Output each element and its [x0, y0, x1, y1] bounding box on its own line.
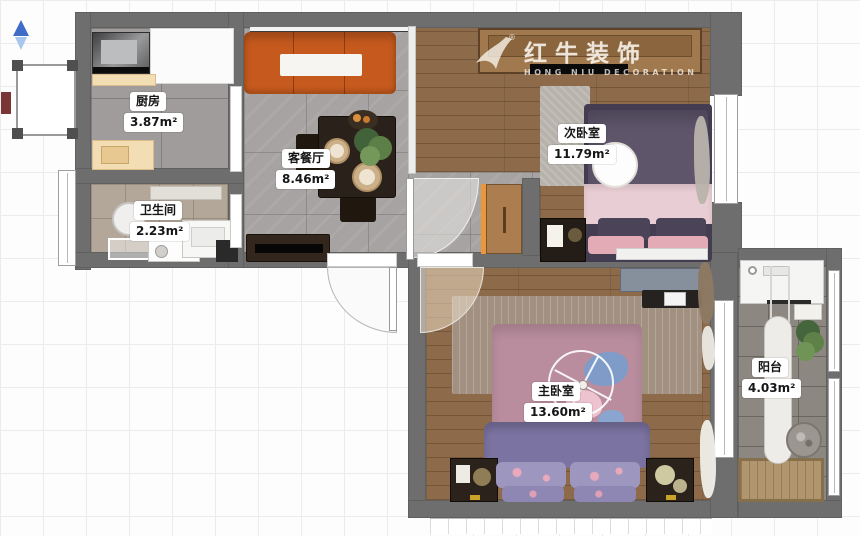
- room-label-kitchen[interactable]: 厨房 3.87m²: [130, 90, 183, 132]
- room-name: 卫生间: [134, 201, 182, 220]
- cabinet-handle: [503, 207, 506, 233]
- bed1-pillow-small: [502, 486, 564, 502]
- nightstand-dish: [473, 468, 491, 486]
- brand-name: 红牛装饰: [524, 34, 697, 68]
- bay-post-bottom-right: [67, 128, 78, 139]
- room-area: 2.23m²: [130, 222, 189, 241]
- room-area: 8.46m²: [276, 170, 335, 189]
- fruit: [363, 116, 370, 123]
- kitchen-lower-counter[interactable]: [92, 140, 154, 170]
- bed1-pillows: [492, 460, 642, 504]
- room-label-bathroom[interactable]: 卫生间 2.23m²: [134, 199, 189, 241]
- nightstand-paper: [456, 465, 470, 483]
- room-label-living[interactable]: 客餐厅 8.46m²: [282, 147, 335, 189]
- room-label-bedroom1[interactable]: 主卧室 13.60m²: [532, 380, 592, 422]
- room-name: 客餐厅: [282, 149, 330, 168]
- room-area: 13.60m²: [524, 403, 592, 422]
- cooktop-strip: [93, 67, 149, 73]
- entry-door-opening: [327, 253, 397, 267]
- kitchen-door-opening: [230, 86, 242, 172]
- bed2-bench: [616, 248, 708, 260]
- hall-door-leaf[interactable]: [406, 178, 414, 260]
- north-arrow-head: [13, 20, 29, 36]
- bedroom1-door-opening: [417, 253, 473, 267]
- plate-inner: [359, 169, 375, 185]
- gold-knob: [666, 495, 676, 500]
- wall-balcony-bottom: [738, 500, 842, 518]
- room-name: 阳台: [752, 358, 788, 377]
- sofa-throw-blanket: [280, 54, 362, 76]
- tv-cabinet-groove: [255, 244, 323, 253]
- bathroom-door-opening: [230, 194, 242, 248]
- bay-post-top-left: [12, 60, 23, 71]
- bedroom1-desk[interactable]: [620, 268, 700, 292]
- floorplan-canvas: ® 红牛装饰 HONG NIU DECORATION: [0, 0, 860, 536]
- kitchen-counter-cabinet[interactable]: [150, 28, 234, 84]
- balcony-side-table[interactable]: [794, 304, 822, 320]
- bay-post-top-right: [67, 60, 78, 71]
- tv-cabinet[interactable]: [246, 234, 330, 262]
- entry-door-leaf[interactable]: [389, 267, 397, 331]
- bedroom2-window[interactable]: [714, 94, 738, 204]
- washing-machine[interactable]: [740, 260, 824, 304]
- registered-mark: ®: [508, 33, 516, 42]
- living-bedroom2-partition: [408, 26, 416, 174]
- room-name: 主卧室: [532, 382, 580, 401]
- nightstand-plate: [655, 465, 675, 485]
- bed1-pillow: [570, 462, 640, 488]
- bathroom-window[interactable]: [58, 170, 76, 266]
- wall-wardrobe-nook: [522, 178, 540, 256]
- exterior-pipe-marker: [1, 92, 11, 114]
- kitchen-sink: [101, 146, 129, 164]
- brand-subtitle: HONG NIU DECORATION: [524, 68, 697, 77]
- fruit: [353, 114, 361, 122]
- washer-tray: [763, 266, 789, 276]
- north-arrow-tail: [15, 37, 27, 50]
- bedroom2-nightstand[interactable]: [540, 218, 586, 262]
- gold-knob: [470, 495, 480, 500]
- mop-wheel: [155, 245, 168, 258]
- nightstand-plate: [673, 479, 687, 493]
- balcony-window-upper[interactable]: [828, 270, 840, 372]
- room-area: 11.79m²: [548, 145, 616, 164]
- balcony-wood-mat[interactable]: [738, 458, 824, 502]
- kitchen-counter-beige[interactable]: [92, 74, 156, 86]
- bed1-pillow: [496, 462, 566, 488]
- wall-kitchen-bath: [75, 168, 244, 184]
- balcony-window-lower[interactable]: [828, 378, 840, 496]
- range-hood[interactable]: [92, 32, 150, 74]
- room-label-balcony[interactable]: 阳台 4.03m²: [752, 356, 801, 398]
- table-plant[interactable]: [352, 126, 396, 170]
- wall-left: [75, 12, 91, 270]
- dining-chair-bottom[interactable]: [340, 196, 376, 222]
- bedroom1-nightstand-left[interactable]: [450, 458, 498, 502]
- bedroom1-balcony-window[interactable]: [714, 300, 734, 458]
- exterior-siding: [430, 518, 712, 534]
- plant-foliage: [360, 146, 380, 166]
- nightstand-dish: [568, 228, 582, 242]
- room-area: 3.87m²: [124, 113, 183, 132]
- bull-icon: ®: [466, 33, 518, 77]
- room-name: 次卧室: [558, 124, 606, 143]
- room-area: 4.03m²: [742, 379, 801, 398]
- north-arrow-icon: [12, 20, 30, 54]
- range-hood-vent: [101, 40, 137, 64]
- hall-cabinet[interactable]: [486, 184, 522, 254]
- washer-dial: [748, 266, 757, 275]
- room-label-bedroom2[interactable]: 次卧室 11.79m²: [558, 122, 616, 164]
- sofa[interactable]: [244, 32, 396, 94]
- kitchen-bay-window[interactable]: [16, 64, 76, 136]
- bed1-pillow-small: [574, 486, 636, 502]
- room-name: 厨房: [130, 92, 166, 111]
- nightstand-notebook: [547, 225, 563, 247]
- bedroom1-nightstand-right[interactable]: [646, 458, 694, 502]
- brand-logo: ® 红牛装饰 HONG NIU DECORATION: [466, 26, 728, 84]
- bay-post-bottom-left: [12, 128, 23, 139]
- balcony-pouf[interactable]: [786, 422, 822, 458]
- bathroom-shelf[interactable]: [150, 186, 222, 200]
- cabinet-accent-strip: [481, 184, 486, 254]
- desk-laptop[interactable]: [664, 292, 686, 306]
